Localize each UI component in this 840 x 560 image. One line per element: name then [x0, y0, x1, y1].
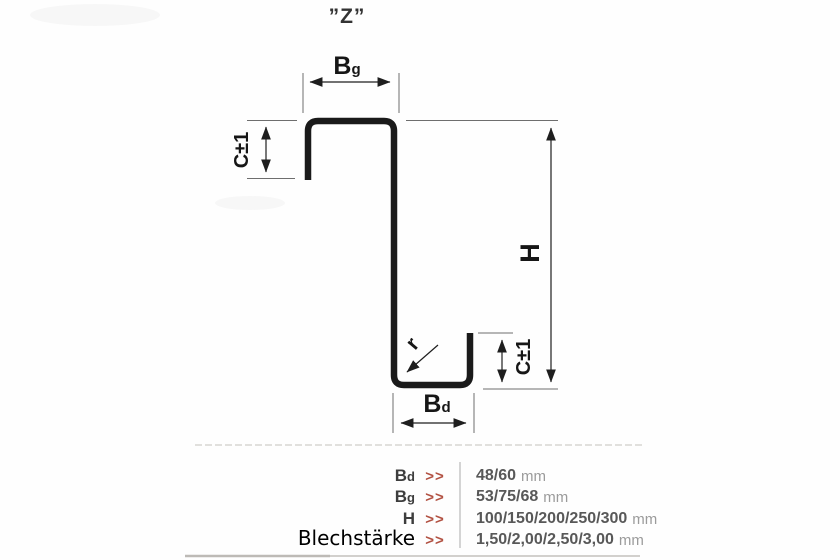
chevron-icon: >> [415, 468, 455, 485]
dimension-label-bd: Bd [402, 390, 472, 418]
chevron-icon: >> [415, 489, 455, 506]
z-profile-outline [308, 121, 470, 385]
spec-value: 100/150/200/250/300 [476, 510, 627, 528]
spec-label: Bd [180, 465, 415, 488]
bg-subscript: g [351, 60, 360, 80]
dimension-label-c-left: C±1 [230, 120, 254, 180]
spec-value: 48/60 [476, 467, 516, 485]
bd-subscript: d [441, 398, 450, 418]
dimension-c-left [247, 121, 297, 179]
spec-value: 53/75/68 [476, 488, 538, 506]
spec-unit: mm [619, 532, 644, 549]
bd-base: B [423, 390, 441, 419]
scan-smudge [30, 4, 160, 26]
spec-row-blechstaerke: Blechstärke >> 1,50/2,00/2,50/3,00 mm [180, 529, 700, 551]
drawing-title: ”Z” [297, 4, 397, 30]
spec-row-bd: Bd >> 48/60 mm [180, 465, 700, 487]
spec-unit: mm [632, 511, 657, 528]
dimension-label-c-right: C±1 [512, 327, 536, 387]
dimension-label-bg: Bg [312, 52, 382, 80]
dimension-label-h: H [510, 223, 550, 283]
spec-unit: mm [543, 489, 568, 506]
z-profile-drawing: ”Z” Bg C±1 H C±1 r Bd Bd >> 48/60 mm Bg … [0, 0, 840, 560]
bg-base: B [333, 52, 351, 81]
scan-smudge [215, 196, 285, 210]
spec-row-bg: Bg >> 53/75/68 mm [180, 486, 700, 508]
chevron-icon: >> [415, 511, 455, 528]
dimension-c-right [478, 333, 513, 382]
spec-label: Bg [180, 486, 415, 509]
spec-unit: mm [521, 468, 546, 485]
spec-label: Blechstärke [180, 527, 415, 553]
spec-value: 1,50/2,00/2,50/3,00 [476, 531, 614, 549]
chevron-icon: >> [415, 532, 455, 549]
